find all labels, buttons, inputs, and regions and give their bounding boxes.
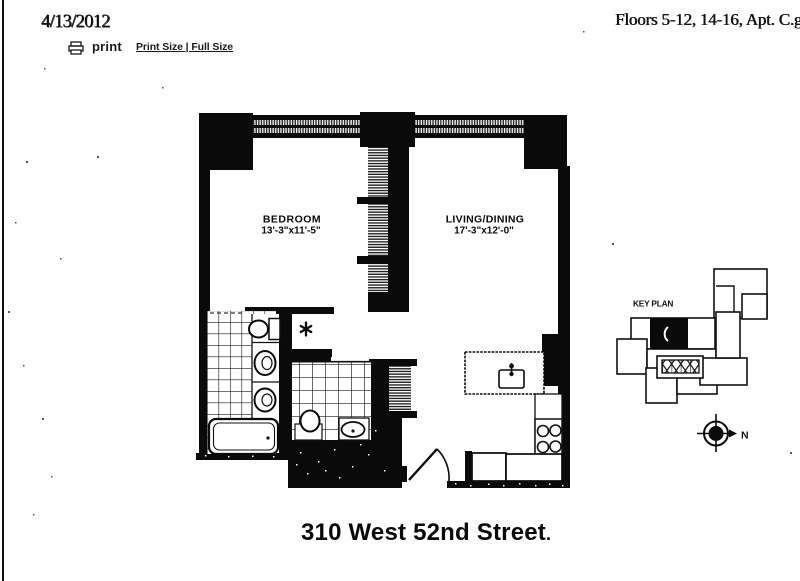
svg-text:N: N: [741, 430, 749, 442]
svg-text:17'-3"x12'-0": 17'-3"x12'-0": [454, 226, 514, 237]
svg-text:KEY PLAN: KEY PLAN: [633, 299, 673, 309]
svg-text:LIVING/DINING: LIVING/DINING: [446, 214, 525, 226]
svg-text:BEDROOM: BEDROOM: [263, 214, 321, 226]
svg-text:13'-3"x11'-5": 13'-3"x11'-5": [261, 226, 321, 237]
